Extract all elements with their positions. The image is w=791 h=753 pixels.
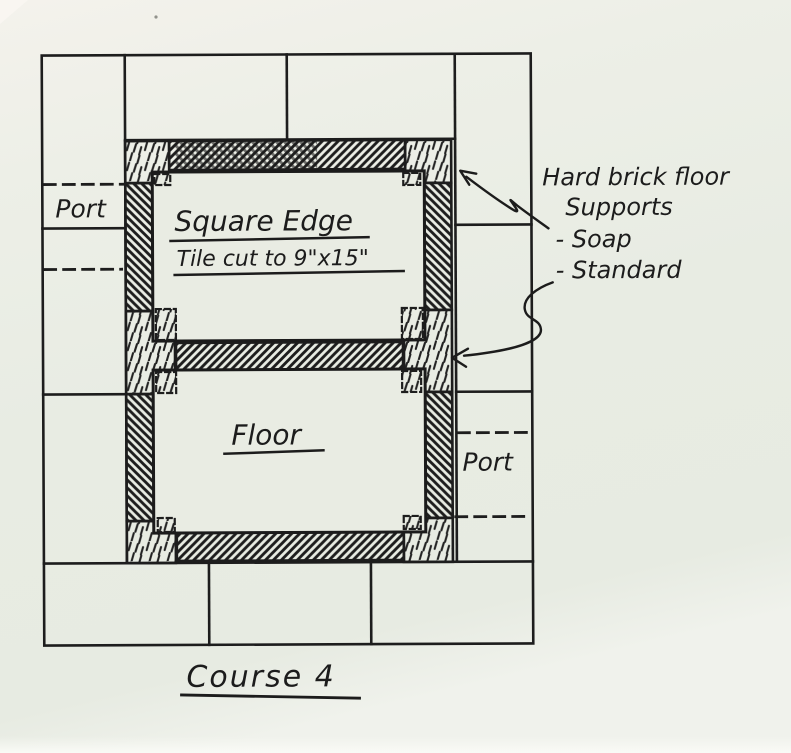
photo-bottom-edge	[0, 736, 791, 753]
dashed-support-lower-chamber-top-right	[402, 371, 421, 392]
annotation-line2: Supports	[565, 193, 673, 221]
annotation-line1: Hard brick floor	[542, 163, 731, 192]
caption-course-4: Course 4	[186, 659, 336, 695]
wall-right-lower	[425, 392, 453, 518]
wall-bottom-band	[177, 532, 404, 561]
course-4-brick-course-diagram: Port Port Square Edge Tile cut to 9"x15"…	[0, 0, 791, 753]
square-edge-label: Square Edge	[174, 204, 353, 238]
caption-group: Course 4	[181, 659, 359, 699]
dashed-support-upper-chamber-top-left	[154, 174, 170, 185]
dashed-support-lower-chamber-top-left	[156, 372, 176, 393]
tile-cut-label: Tile cut to 9"x15"	[177, 246, 369, 272]
wall-left-lower	[126, 394, 154, 521]
dashed-support-upper-chamber-bottom-left	[156, 309, 176, 340]
dashed-support-lower-chamber-bottom-right	[404, 516, 421, 529]
paper-speck	[154, 15, 157, 18]
dashed-support-lower-chamber-bottom-left	[158, 518, 175, 532]
annotation-item-soap: - Soap	[555, 225, 631, 253]
wall-middle-band	[176, 342, 404, 371]
dashed-support-upper-chamber-bottom-right	[402, 308, 423, 339]
floor-label: Floor	[231, 418, 302, 451]
scanned-drawing-page: Port Port Square Edge Tile cut to 9"x15"…	[0, 0, 791, 753]
wall-top-band-crosshatch-overlay	[175, 141, 317, 169]
annotation-item-standard: - Standard	[556, 256, 683, 285]
wall-left-upper	[125, 183, 153, 311]
port-left-label: Port	[55, 194, 107, 223]
port-right-label: Port	[462, 448, 514, 477]
dashed-support-upper-chamber-top-right	[403, 173, 420, 185]
wall-right-upper	[424, 183, 452, 310]
